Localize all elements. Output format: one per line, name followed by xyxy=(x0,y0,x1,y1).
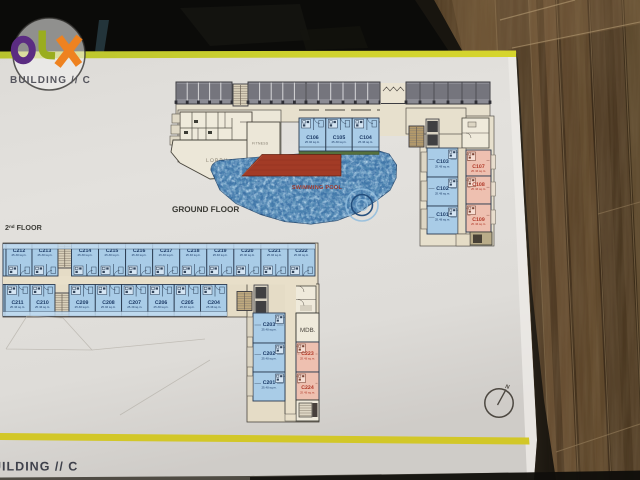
svg-text:25.48 sq.m.: 25.48 sq.m. xyxy=(77,253,92,257)
svg-text:25.48 sq.m.: 25.48 sq.m. xyxy=(37,253,52,257)
svg-text:GROUND FLOOR: GROUND FLOOR xyxy=(172,205,239,214)
svg-text:BUILDING // C: BUILDING // C xyxy=(0,460,78,474)
svg-text:MDB.: MDB. xyxy=(300,327,316,334)
svg-text:25.48 sq.m.: 25.48 sq.m. xyxy=(180,305,195,309)
svg-text:FITNESS: FITNESS xyxy=(252,142,269,146)
svg-text:25.48 sq.m.: 25.48 sq.m. xyxy=(159,253,174,257)
svg-text:25.48 sq.m.: 25.48 sq.m. xyxy=(132,253,147,257)
svg-text:25.48 sq.m.: 25.48 sq.m. xyxy=(186,253,201,257)
svg-text:25.48 sq.m.: 25.48 sq.m. xyxy=(294,253,309,257)
svg-text:25.48 sq.m.: 25.48 sq.m. xyxy=(471,187,486,191)
svg-text:25.48 sq.m.: 25.48 sq.m. xyxy=(471,222,486,226)
svg-text:25.48 sq.m.: 25.48 sq.m. xyxy=(10,305,25,309)
svg-text:25.48 sq.m.: 25.48 sq.m. xyxy=(435,164,450,168)
svg-text:25.48 sq.m.: 25.48 sq.m. xyxy=(213,253,228,257)
svg-text:25.48 sq.m.: 25.48 sq.m. xyxy=(261,327,276,331)
svg-text:25.48 sq.m.: 25.48 sq.m. xyxy=(261,385,276,389)
svg-text:25.48 sq.m.: 25.48 sq.m. xyxy=(206,305,221,309)
svg-text:25.48 sq.m.: 25.48 sq.m. xyxy=(300,356,315,360)
svg-text:25.48 sq.m.: 25.48 sq.m. xyxy=(101,305,116,309)
svg-text:25.48 sq.m.: 25.48 sq.m. xyxy=(127,305,142,309)
svg-text:25.48 sq.m.: 25.48 sq.m. xyxy=(261,356,276,360)
svg-text:SWIMMING POOL: SWIMMING POOL xyxy=(292,185,343,191)
svg-text:25.48 sq.m.: 25.48 sq.m. xyxy=(358,140,373,144)
svg-text:25.48 sq.m.: 25.48 sq.m. xyxy=(240,253,255,257)
svg-text:25.48 sq.m.: 25.48 sq.m. xyxy=(75,305,90,309)
svg-text:25.48 sq.m.: 25.48 sq.m. xyxy=(305,140,320,144)
svg-text:25.48 sq.m.: 25.48 sq.m. xyxy=(435,217,450,221)
svg-text:25.48 sq.m.: 25.48 sq.m. xyxy=(35,305,50,309)
svg-text:25.48 sq.m.: 25.48 sq.m. xyxy=(471,169,486,173)
svg-text:25.48 sq.m.: 25.48 sq.m. xyxy=(267,253,282,257)
svg-text:25.48 sq.m.: 25.48 sq.m. xyxy=(105,253,120,257)
svg-text:25.48 sq.m.: 25.48 sq.m. xyxy=(11,253,26,257)
svg-text:25.48 sq.m.: 25.48 sq.m. xyxy=(300,390,315,394)
svg-text:25.48 sq.m.: 25.48 sq.m. xyxy=(153,305,168,309)
svg-text:BUILDING // C: BUILDING // C xyxy=(10,75,91,86)
svg-text:25.48 sq.m.: 25.48 sq.m. xyxy=(435,191,450,195)
svg-text:25.48 sq.m.: 25.48 sq.m. xyxy=(331,140,346,144)
